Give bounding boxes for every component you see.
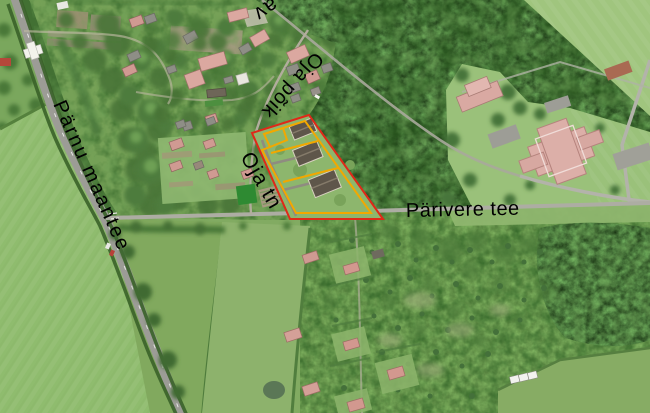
svg-text:Pärivere tee: Pärivere tee — [406, 198, 520, 222]
